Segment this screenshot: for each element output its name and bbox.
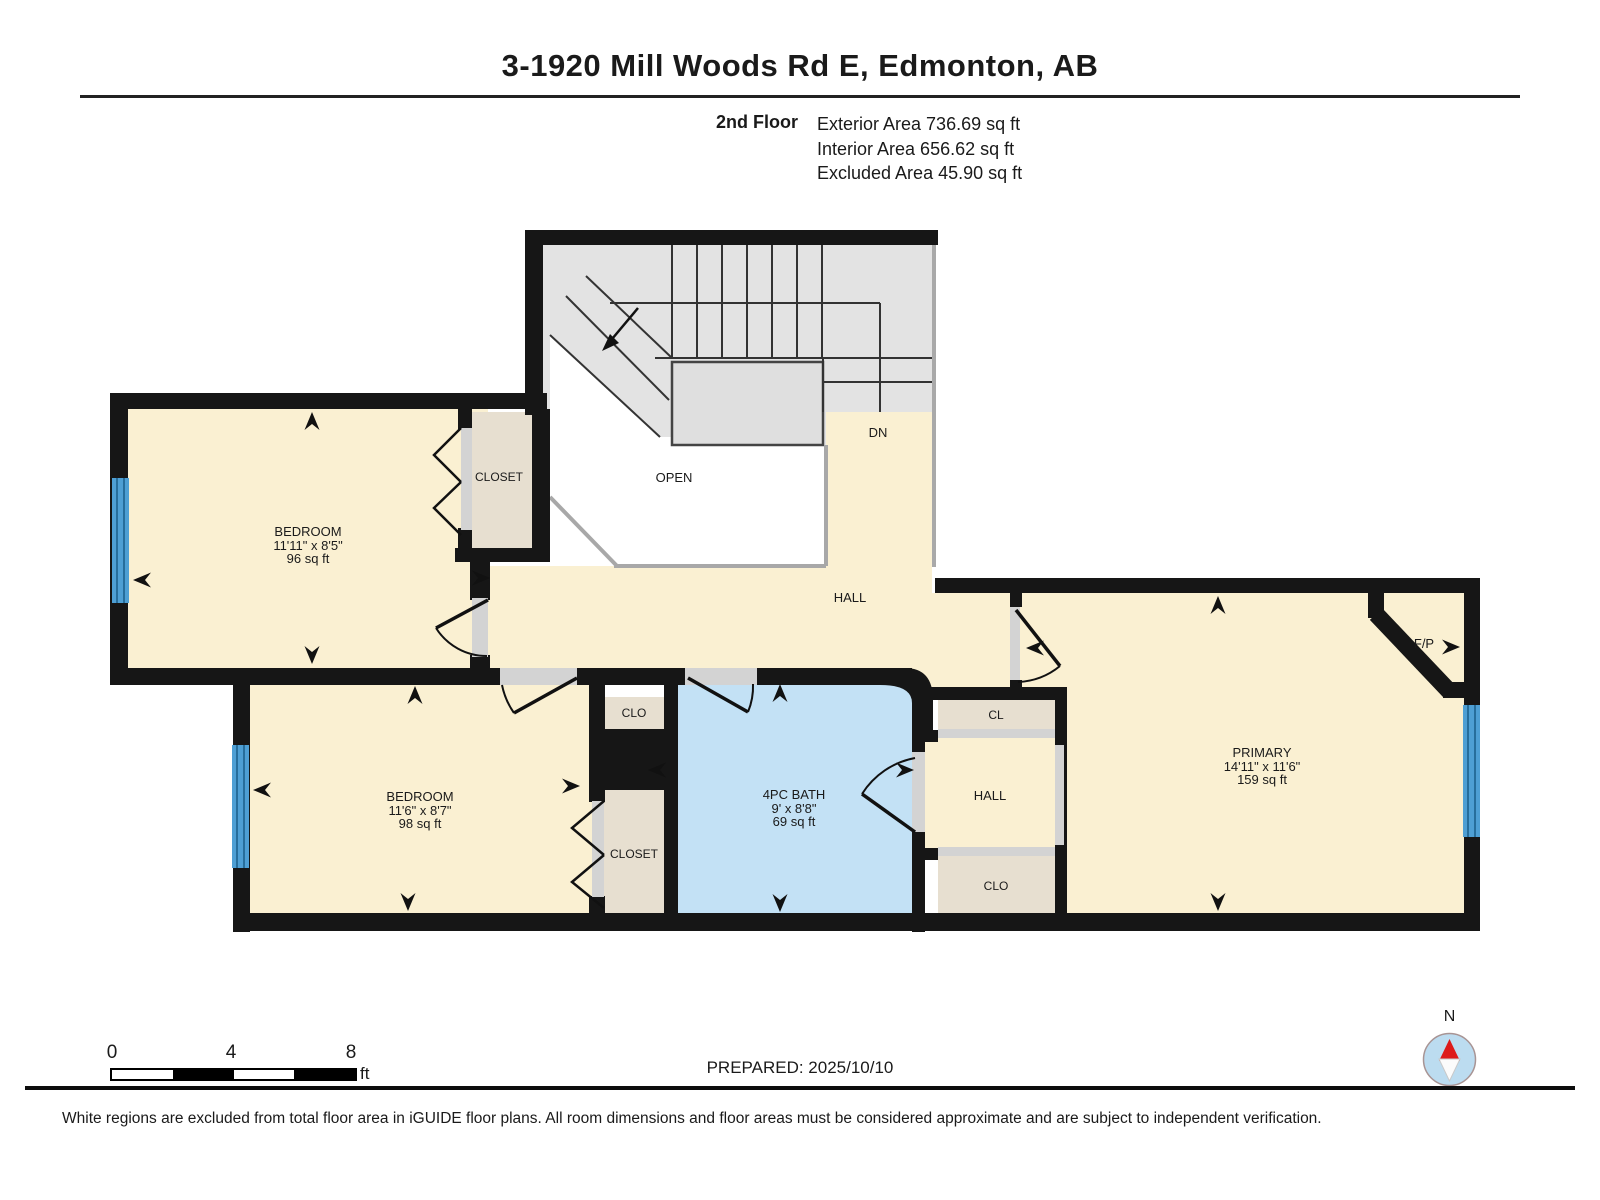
closet-1-label: CLOSET — [475, 470, 524, 484]
window-bedroom-2 — [232, 745, 249, 868]
hall-label: HALL — [834, 590, 867, 605]
clo-right-label: CLO — [984, 879, 1009, 893]
clo-small-label: CLO — [622, 706, 647, 720]
bath-area: 69 sq ft — [773, 814, 816, 829]
compass-icon — [1422, 1032, 1477, 1087]
primary-area: 159 sq ft — [1237, 772, 1287, 787]
dn-label: DN — [869, 425, 888, 440]
compass-north-label: N — [1422, 1008, 1477, 1026]
bath-name: 4PC BATH — [763, 787, 826, 802]
floor-plan: BEDROOM 11'11" x 8'5" 96 sq ft BEDROOM 1… — [0, 0, 1600, 1200]
prepared-date: PREPARED: 2025/10/10 — [0, 1058, 1600, 1078]
cl-label: CL — [988, 708, 1004, 722]
window-bedroom-1 — [112, 478, 129, 603]
disclaimer-text: White regions are excluded from total fl… — [62, 1110, 1322, 1128]
open-label: OPEN — [656, 470, 693, 485]
footer-divider — [25, 1086, 1575, 1090]
hall-right-label: HALL — [974, 788, 1007, 803]
excluded-boundary-line — [932, 245, 936, 567]
bedroom-1-area: 96 sq ft — [287, 551, 330, 566]
primary-name: PRIMARY — [1233, 745, 1292, 760]
bedroom-1-name: BEDROOM — [274, 524, 341, 539]
bedroom-2-area: 98 sq ft — [399, 816, 442, 831]
bedroom-2-name: BEDROOM — [386, 789, 453, 804]
window-primary — [1463, 705, 1480, 837]
closet-2-label: CLOSET — [610, 847, 659, 861]
fireplace-label: F/P — [1414, 636, 1434, 651]
